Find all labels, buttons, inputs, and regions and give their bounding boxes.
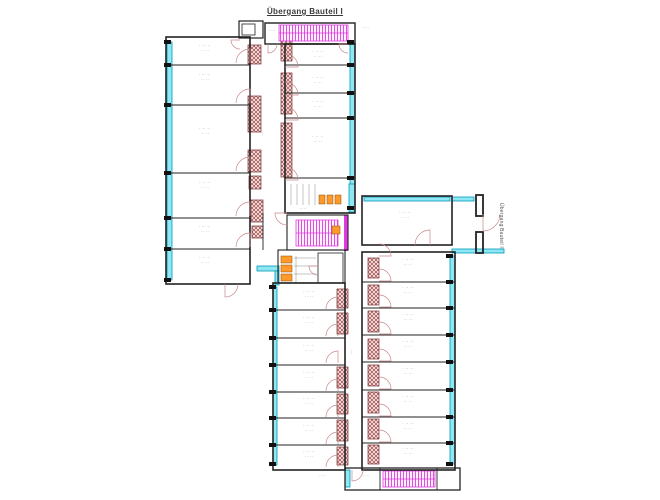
facade-tick <box>347 63 354 67</box>
door-swing <box>379 322 391 334</box>
brick-pier <box>249 176 261 189</box>
facade-tick <box>347 116 354 120</box>
room-label-line2: ·· ·· <box>404 399 412 404</box>
small-annotation: ·· ·· <box>328 244 334 248</box>
door-swing <box>326 324 338 336</box>
brick-pier <box>368 419 379 439</box>
facade-tick <box>446 388 453 392</box>
wc-fixture <box>332 226 340 234</box>
door-swing <box>379 269 391 281</box>
facade-tick <box>446 306 453 310</box>
facade-tick <box>269 443 276 447</box>
floorplan-page: Übergang Bauteil I Übergang Bauteil II ·… <box>0 0 660 500</box>
brick-pier <box>368 339 379 359</box>
door-swing <box>268 44 277 53</box>
door-swing <box>326 297 338 309</box>
door-swing <box>326 351 338 363</box>
door-swing <box>339 44 348 53</box>
floorplan-svg: · ·· ···· ··· ·· ···· ··· ·· ···· ··· ··… <box>0 0 660 500</box>
room-label-line2: ·· ·· <box>201 131 209 136</box>
corridor-label: ···· <box>260 130 265 135</box>
door-swing <box>326 405 338 417</box>
facade-tick <box>347 40 354 44</box>
door-swing <box>379 430 391 442</box>
room-label-line2: ·· ·· <box>305 454 313 459</box>
brick-pier <box>281 40 292 61</box>
room-label-line2: ·· ·· <box>305 294 313 299</box>
facade-tick <box>269 416 276 420</box>
room-label-line2: ·· ·· <box>201 77 209 82</box>
facade-tick <box>269 363 276 367</box>
brick-pier <box>337 447 348 465</box>
facade-tick <box>446 441 453 445</box>
door-swing <box>326 432 338 444</box>
room-label-line2: ·· ·· <box>305 348 313 353</box>
room-wall <box>318 253 343 283</box>
brick-pier <box>368 258 379 278</box>
room-label-line2: ·· ·· <box>404 290 412 295</box>
room-wall <box>242 24 255 35</box>
facade-tick <box>164 40 171 44</box>
small-annotation: ·· ·· <box>363 474 369 478</box>
wc-fixture <box>281 265 292 272</box>
facade-tick <box>446 254 453 258</box>
facade-tick <box>164 103 171 107</box>
brick-pier <box>368 392 379 413</box>
facade-tick <box>269 308 276 312</box>
brick-pier <box>251 200 263 222</box>
small-annotation: ·· ·· <box>427 474 433 478</box>
facade-tick <box>164 216 171 220</box>
room-label-line2: ·· ·· <box>404 317 412 322</box>
door-swing <box>236 233 250 247</box>
small-annotation: ·· ·· <box>319 474 325 478</box>
room-label-line2: ·· ·· <box>314 104 322 109</box>
door-swing <box>415 230 430 245</box>
room-label-line2: ·· ·· <box>305 375 313 380</box>
window-glazing <box>452 197 474 201</box>
facade-tick <box>347 91 354 95</box>
brick-pier <box>337 289 348 308</box>
room-label-line2: ·· ·· <box>404 262 412 267</box>
facade-tick <box>446 280 453 284</box>
room-wall <box>362 196 452 245</box>
brick-pier <box>368 285 379 305</box>
door-swing <box>309 266 318 275</box>
room-label-line2: ·· ·· <box>201 229 209 234</box>
brick-pier <box>252 226 263 238</box>
facade-tick <box>446 462 453 466</box>
door-swing <box>231 40 240 49</box>
wc-fixture <box>335 195 341 204</box>
facade-tick <box>347 206 354 210</box>
door-swing <box>236 202 250 216</box>
facade-tick <box>269 285 276 289</box>
door-swing <box>379 244 391 256</box>
brick-pier <box>337 420 348 441</box>
door-swing <box>225 284 238 297</box>
room-label-line2: ·· ·· <box>314 54 322 59</box>
door-swing <box>326 379 338 391</box>
facade-tick <box>446 415 453 419</box>
facade-tick <box>164 247 171 251</box>
stair-wall-accent <box>344 215 348 251</box>
brick-pier <box>368 445 379 464</box>
room-label-line2: ·· ·· <box>404 426 412 431</box>
small-annotation: ·· ·· <box>363 26 369 30</box>
small-annotation: ·· ·· <box>269 29 275 33</box>
window-glazing <box>257 266 279 271</box>
room-wall <box>476 195 483 216</box>
room-label-line2: ·· ·· <box>404 371 412 376</box>
room-label-line2: ·· ·· <box>305 428 313 433</box>
brick-pier <box>337 394 348 414</box>
room-label-line2: ·· ·· <box>201 185 209 190</box>
window-glazing <box>167 42 172 280</box>
facade-tick <box>269 390 276 394</box>
brick-pier <box>337 367 348 388</box>
corridor-label: ···· <box>349 349 354 354</box>
brick-pier <box>368 311 379 332</box>
facade-tick <box>164 63 171 67</box>
brick-pier <box>281 123 292 177</box>
brick-pier <box>368 365 379 386</box>
window-glazing <box>364 197 450 201</box>
facade-tick <box>164 171 171 175</box>
wc-fixture <box>319 195 325 204</box>
room-label-line2: ·· ·· <box>201 260 209 265</box>
room-label-line2: ·· ·· <box>314 80 322 85</box>
room-label-line2: ·· ·· <box>305 320 313 325</box>
brick-pier <box>337 313 348 334</box>
door-swing <box>326 455 338 467</box>
facade-tick <box>446 333 453 337</box>
room-label-line2: ·· ·· <box>314 139 322 144</box>
room-label-line2: ·· ·· <box>404 344 412 349</box>
window-glazing <box>345 470 350 487</box>
wc-fixture <box>281 274 292 281</box>
facade-tick <box>446 360 453 364</box>
room-label-line2: ·· ·· <box>401 215 409 220</box>
wc-fixture <box>281 256 292 263</box>
room-label-line2: ·· ·· <box>201 48 209 53</box>
door-swing <box>483 214 500 231</box>
room-wall <box>285 44 355 213</box>
room-label-line2: ·· ·· <box>404 451 412 456</box>
door-swing <box>379 377 391 389</box>
door-swing <box>379 404 391 416</box>
facade-tick <box>164 278 171 282</box>
room-wall <box>239 21 263 38</box>
wc-fixture <box>327 195 333 204</box>
door-swing <box>379 295 391 307</box>
door-swing <box>379 349 391 361</box>
door-swing <box>352 470 363 481</box>
facade-tick <box>269 336 276 340</box>
facade-tick <box>347 176 354 180</box>
door-swing <box>275 213 287 225</box>
room-label-line2: ·· ·· <box>305 401 313 406</box>
small-annotation: ·· ·· <box>300 207 306 211</box>
facade-tick <box>269 462 276 466</box>
